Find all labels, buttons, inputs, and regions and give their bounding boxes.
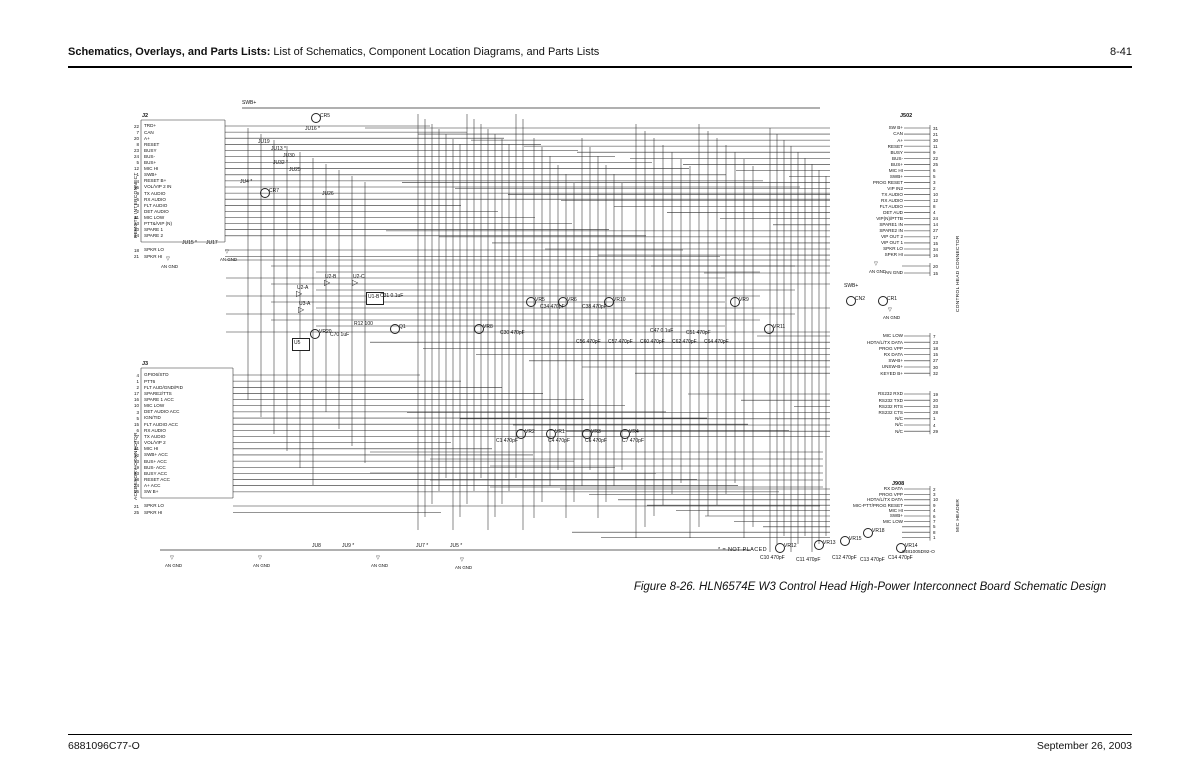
header-title: Schematics, Overlays, and Parts Lists: L…	[68, 46, 599, 58]
ground-glyph: ▽	[166, 256, 170, 262]
pin-label: RX DATA	[830, 352, 904, 357]
schematic-diagram: * = NOT PLACED 6481005D92-O J2REMOTE INT…	[130, 100, 1010, 570]
pin-number: 19	[933, 392, 938, 397]
pin-label: MIC-PTT/PROG RESET	[830, 503, 904, 508]
pin-label: GPIO6/STD	[143, 372, 170, 377]
pin-label: RS232 RTS	[830, 404, 904, 409]
component-ref: JU4 *	[240, 180, 252, 185]
pin-label: PTT&/VIP (N)	[143, 221, 173, 226]
pin-number: 11	[933, 144, 938, 149]
component-ref: JU30	[283, 154, 295, 159]
pin-number: 16	[933, 253, 938, 258]
component-ref: VR18	[872, 529, 885, 534]
connector-side-label-accessory: ACCESSORY CONNECTOR	[134, 432, 139, 500]
ground-symbol: ▽	[888, 308, 892, 313]
component-ref: JU9 *	[342, 544, 354, 549]
pin-label: N/C	[830, 429, 904, 434]
component-ref: C56 470pF	[576, 340, 601, 345]
component-ref: C14 470pF	[888, 556, 913, 561]
pin-number: 17	[130, 391, 139, 396]
component-ref: VR4	[629, 430, 639, 435]
pin-label: IGN/TID	[143, 415, 162, 420]
component-ref: U2-B	[325, 275, 336, 280]
pin-number: 28	[933, 410, 938, 415]
footer-date: September 26, 2003	[1037, 740, 1132, 752]
component-ref: R12 100	[354, 322, 373, 327]
component-ref: JU7 *	[416, 544, 428, 549]
pin-number: 18	[933, 346, 938, 351]
component-ref: C51 470pF	[686, 331, 711, 336]
pin-number: 8	[933, 530, 936, 535]
pin-label: SPARE 1 ACC	[143, 397, 175, 402]
component-ref: U1-B	[368, 295, 379, 300]
component-ref: VR10	[613, 298, 626, 303]
pin-number: 30	[933, 138, 938, 143]
pin-label: PROG RESET	[830, 180, 904, 185]
pin-label: FLT AUDIO	[143, 203, 168, 208]
connector-id-accessory: J3	[142, 361, 148, 367]
pin-number: 16	[130, 397, 139, 402]
pin-label: HDTA/L/TX DATA	[830, 340, 904, 345]
pin-label: SPARE2/TTS	[143, 391, 173, 396]
pin-number: 7	[130, 130, 139, 135]
pin-label: RESET	[143, 142, 160, 147]
pin-number: 24	[130, 154, 139, 159]
component-ref: VR5	[535, 298, 545, 303]
pin-label: SPKR LO	[143, 247, 165, 252]
pin-number: 10	[130, 403, 139, 408]
pin-label: KEYED B+	[830, 371, 904, 376]
opamp-symbol: ▷	[296, 290, 302, 298]
component-ref: U2-A	[297, 286, 308, 291]
component-ref: CR7	[269, 189, 279, 194]
component-ref: CR5	[320, 114, 330, 119]
pin-label: DET AUDIO	[143, 209, 170, 214]
pin-number: 23	[933, 340, 938, 345]
pin-label: SPARE1 IN	[830, 222, 904, 227]
pin-label: BUS- ACC	[143, 465, 167, 470]
ground-glyph: ▽	[376, 555, 380, 561]
pin-number: 5	[130, 160, 139, 165]
pin-label: BUSY	[143, 148, 158, 153]
pin-number: 2	[933, 186, 936, 191]
pin-label: BUS-	[143, 154, 156, 159]
component-ref: JU32 *	[273, 161, 288, 166]
pin-label: MIC LOW	[143, 215, 165, 220]
pin-label: HDTA/L/TX DATA	[830, 497, 904, 502]
opamp-symbol: ▷	[298, 306, 304, 314]
pin-label: RX AUDIO	[143, 428, 167, 433]
header-title-bold: Schematics, Overlays, and Parts Lists:	[68, 46, 270, 58]
pin-label: VIP(N)/PTTB	[830, 216, 904, 221]
pin-label: PROG VPP	[830, 346, 904, 351]
pin-label: SPKR LO	[143, 503, 165, 508]
ground-glyph: ▽	[874, 261, 878, 267]
component-ref: C4 470pF	[548, 439, 570, 444]
pin-number: 31	[933, 126, 938, 131]
pin-number: 17	[933, 235, 938, 240]
component-ref: VR2	[525, 430, 535, 435]
pin-label: MIC HI	[830, 168, 904, 173]
pin-number: 15	[933, 271, 938, 276]
component-ref: C31 0.1uF	[380, 294, 403, 299]
pin-label: SPKR HI	[830, 252, 904, 257]
ground-label: AN GND	[161, 264, 178, 269]
pin-label: RX AUDIO	[143, 197, 167, 202]
opamp-symbol: ▷	[352, 279, 358, 287]
pin-label: RS232 CTS	[830, 410, 904, 415]
component-ref: C11 470pF	[796, 558, 820, 563]
component-ref: JU17	[206, 241, 218, 246]
ground-label: AN GND	[455, 565, 472, 570]
ground-glyph: ▽	[225, 249, 229, 255]
ground-label: AN GND	[220, 257, 237, 262]
component-ref: SWB+	[844, 284, 858, 289]
component-ref: C60 470pF	[640, 340, 665, 345]
pin-label: FLT AUD/GND/PID	[143, 385, 184, 390]
pin-number: 5	[130, 416, 139, 421]
pin-number: 10	[933, 192, 938, 197]
not-placed-note: * = NOT PLACED	[718, 547, 767, 553]
component-ref: VR3	[591, 430, 601, 435]
component-ref: VR12	[784, 544, 797, 549]
manual-page: Schematics, Overlays, and Parts Lists: L…	[0, 0, 1200, 776]
pin-number: 8	[933, 204, 936, 209]
board-number: 6481005D92-O	[902, 550, 935, 555]
pin-label: VIP IN2	[830, 186, 904, 191]
pin-number: 27	[933, 228, 938, 233]
pin-number: 2	[933, 487, 936, 492]
component-ref: VR13	[823, 541, 836, 546]
pin-label: AN GND	[830, 270, 904, 275]
pin-label: MIC LOW	[830, 333, 904, 338]
pin-label: BUS+	[143, 160, 157, 165]
pin-label: TX AUDIO	[143, 434, 166, 439]
ground-glyph: ▽	[170, 555, 174, 561]
pin-number: 4	[933, 210, 936, 215]
component-ref: JU15 *	[182, 241, 197, 246]
connector-side-label-mic_header: MIC HEADER	[956, 499, 961, 532]
pin-label: SPARE2 IN	[830, 228, 904, 233]
pin-number: 2	[130, 385, 139, 390]
pin-label: PROG VPP	[830, 492, 904, 497]
pin-label: FLT AUDIO	[830, 204, 904, 209]
ground-symbol: ▽	[225, 250, 229, 255]
pin-label: MIC HI	[143, 166, 159, 171]
pin-label: SPKR LO	[830, 246, 904, 251]
ground-label: AN GND	[869, 269, 886, 274]
component-ref: C7 470pF	[622, 439, 644, 444]
pin-number: 12	[933, 198, 938, 203]
pin-number: 20	[130, 136, 139, 141]
pin-number: 15	[130, 422, 139, 427]
connector-id-mic_header: J908	[892, 481, 904, 487]
pin-number: 32	[933, 371, 938, 376]
pin-number: 6	[933, 168, 936, 173]
pin-number: 25	[130, 510, 139, 515]
component-ref: VR11	[773, 325, 785, 330]
pin-label: A+ ACC	[143, 483, 161, 488]
pin-label: SW B+	[830, 125, 904, 130]
pin-number: 21	[130, 254, 139, 259]
pin-label: RX DATA	[830, 486, 904, 491]
pin-label: MIC HI	[143, 446, 159, 451]
pin-number: 5	[933, 524, 936, 529]
component-ref: C57 470pF	[608, 340, 633, 345]
pin-label: A+	[143, 136, 151, 141]
component-ref: JU13 *	[271, 147, 286, 152]
pin-label: DET AUDIO ACC	[143, 409, 180, 414]
component-ref: VR9	[739, 298, 749, 303]
pin-label: SWB+	[143, 172, 158, 177]
pin-label: SPARE 2	[143, 233, 164, 238]
pin-label: MIC LOW	[143, 403, 165, 408]
pin-number: 1	[933, 416, 936, 421]
connector-id-remote: J2	[142, 113, 148, 119]
ground-symbol: ▽	[460, 558, 464, 563]
pin-number: 18	[130, 248, 139, 253]
pin-number: 33	[933, 404, 938, 409]
ground-label: AN GND	[883, 315, 900, 320]
component-ref: JU5 *	[450, 544, 462, 549]
pin-label: BUS+	[830, 162, 904, 167]
ground-symbol: ▽	[170, 556, 174, 561]
pin-number: 15	[933, 241, 938, 246]
connector-side-label-control_head: CONTROL HEAD CONNECTOR	[956, 235, 961, 312]
pin-label: VOL/VIP 2	[143, 440, 167, 445]
footer-rule	[68, 734, 1132, 735]
pin-label: SWB+ ACC	[143, 452, 169, 457]
pin-label: RESET ACC	[143, 477, 171, 482]
component-ref: U2-C	[353, 275, 365, 280]
pin-number: 20	[933, 398, 938, 403]
ground-symbol: ▽	[166, 257, 170, 262]
pin-label: SWB+	[830, 513, 904, 518]
component-ref: SWB+	[242, 101, 256, 106]
ground-symbol: ▽	[258, 556, 262, 561]
pin-number: 14	[933, 222, 938, 227]
component-ref: VR6	[567, 298, 577, 303]
component-ref: C62 470pF	[672, 340, 697, 345]
pin-label: RESET	[830, 144, 904, 149]
header-rule	[68, 66, 1132, 68]
pin-number: 9	[933, 150, 936, 155]
page-number: 8-41	[1110, 46, 1132, 58]
pin-number: 3	[130, 410, 139, 415]
component-ref: VR15	[849, 537, 862, 542]
opamp-symbol: ▷	[324, 279, 330, 287]
component-ref: VR1	[555, 430, 565, 435]
component-ref: C12 470pF	[832, 556, 857, 561]
pin-number: 4	[933, 508, 936, 513]
figure-caption: Figure 8-26. HLN6574E W3 Control Head Hi…	[600, 581, 1140, 593]
ground-label: AN GND	[371, 563, 388, 568]
pin-label: TRD+	[143, 123, 157, 128]
pin-number: 15	[933, 352, 938, 357]
pin-label: VIP OUT 2	[830, 234, 904, 239]
pin-label: CAN	[830, 131, 904, 136]
pin-number: 22	[130, 124, 139, 129]
component-ref: C13 470pF	[860, 558, 885, 563]
pin-label: BUSY	[830, 150, 904, 155]
pin-label: BUSY ACC	[143, 471, 168, 476]
pin-number: 20	[933, 264, 938, 269]
pin-label: FLT AUDIO ACC	[143, 422, 179, 427]
pin-number: 7	[933, 334, 936, 339]
pin-number: 29	[933, 429, 938, 434]
connector-side-label-remote: REMOTE INTERCONNECT	[134, 172, 139, 238]
component-ref: C64 470pF	[704, 340, 729, 345]
pin-label: VIP OUT 1	[830, 240, 904, 245]
pin-label: RS232 RXD	[830, 391, 904, 396]
pin-number: 6	[933, 514, 936, 519]
component-ref: C6 470pF	[585, 439, 607, 444]
pin-label: N/C	[830, 416, 904, 421]
pin-number: 3	[933, 492, 936, 497]
component-ref: VR14	[905, 544, 918, 549]
header-title-rest: List of Schematics, Component Location D…	[270, 46, 599, 58]
pin-label: SPARE 1	[143, 227, 164, 232]
pin-label: MIC HI	[830, 508, 904, 513]
ground-label: AN GND	[165, 563, 182, 568]
pin-number: 9	[933, 503, 936, 508]
component-ref: C1 470pF	[496, 439, 518, 444]
component-ref: JU26	[322, 192, 334, 197]
pin-label: SWB+	[830, 174, 904, 179]
pin-label: RX AUDIO	[830, 198, 904, 203]
pin-number: 3	[933, 180, 936, 185]
component-ref: VR8	[483, 325, 493, 330]
pin-number: 22	[933, 156, 938, 161]
pin-number: 34	[933, 247, 938, 252]
ground-glyph: ▽	[460, 557, 464, 563]
pin-label: RS232 TXD	[830, 398, 904, 403]
component-ref: JU16 *	[305, 127, 320, 132]
pin-number: 5	[933, 174, 936, 179]
pin-number: 23	[130, 148, 139, 153]
pin-number: 24	[933, 216, 938, 221]
ground-glyph: ▽	[258, 555, 262, 561]
pin-label: SPKR HI	[143, 510, 163, 515]
pin-label: SPKR HI	[143, 254, 163, 259]
pin-label: N/C	[830, 422, 904, 427]
component-ref: C70 1uF	[330, 333, 349, 338]
component-ref: Q1	[399, 325, 406, 330]
pin-label: TX AUDIO	[830, 192, 904, 197]
pin-label: TX AUDIO	[143, 191, 166, 196]
pin-label: BUS-	[830, 156, 904, 161]
component-ref: U3-A	[299, 302, 310, 307]
pin-number: 21	[933, 132, 938, 137]
component-ref: C38 470pF	[582, 305, 607, 310]
footer-doc-number: 6881096C77-O	[68, 740, 140, 752]
pin-label: PTT6	[143, 379, 156, 384]
pin-number: 27	[933, 358, 938, 363]
pin-number: 1	[130, 379, 139, 384]
pin-label: CAN	[143, 130, 155, 135]
pin-number: 21	[130, 504, 139, 509]
component-ref: JU25	[289, 168, 301, 173]
component-ref: C30 470pF	[500, 331, 525, 336]
pin-label: MIC LOW	[830, 519, 904, 524]
pin-number: 10	[933, 497, 938, 502]
pin-number: 12	[130, 166, 139, 171]
pin-label: VOL/VIP 2 IN	[143, 184, 173, 189]
component-ref: C10 470pF	[760, 556, 785, 561]
pin-label: SW B+	[143, 489, 159, 494]
pin-label: BUS+ ACC	[143, 459, 168, 464]
component-ref: C47 0.1uF	[650, 329, 673, 334]
pin-label: UNSW-B+	[830, 364, 904, 369]
connector-id-control_head: J502	[900, 113, 912, 119]
pin-label: RESET B+	[143, 178, 167, 183]
pin-number: 4	[130, 373, 139, 378]
pin-label: DET AUD	[830, 210, 904, 215]
component-ref: CN2	[855, 297, 865, 302]
pin-number: 1	[933, 535, 936, 540]
pin-number: 30	[933, 365, 938, 370]
component-ref: JU8	[312, 544, 321, 549]
component-ref: U5	[294, 341, 300, 346]
ground-glyph: ▽	[888, 307, 892, 313]
ground-symbol: ▽	[376, 556, 380, 561]
pin-label: SW-B+	[830, 358, 904, 363]
pin-number: 4	[933, 423, 936, 428]
pin-number: 8	[130, 142, 139, 147]
ground-symbol: ▽	[874, 262, 878, 267]
ground-label: AN GND	[253, 563, 270, 568]
pin-number: 7	[933, 519, 936, 524]
pin-number: 25	[933, 162, 938, 167]
component-ref: CR1	[887, 297, 897, 302]
pin-label: A+	[830, 138, 904, 143]
component-ref: JU19	[258, 140, 270, 145]
